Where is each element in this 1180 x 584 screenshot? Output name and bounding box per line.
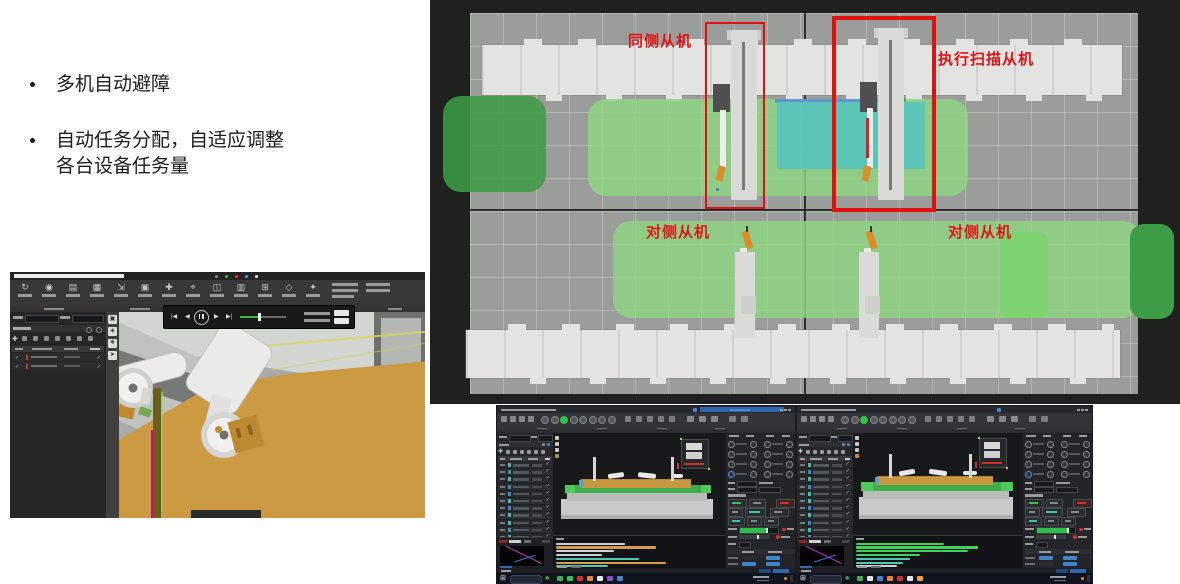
- param-input-2[interactable]: [1034, 487, 1054, 493]
- help-icon[interactable]: ✦: [302, 281, 324, 297]
- sim3d-ribbon-toolbar: ↻◉▤▦⇲▣✚⌖◫▥⊞◇✦: [10, 280, 425, 307]
- task-table-row[interactable]: ✓: [798, 527, 852, 534]
- taskbar-app-icon[interactable]: [577, 576, 583, 582]
- profile-dropdown[interactable]: [809, 435, 831, 442]
- console-log-line: [856, 554, 920, 556]
- aux-button-4[interactable]: [764, 517, 779, 526]
- titlebar-dot-icon[interactable]: [255, 275, 258, 278]
- toolbar-circle-icon[interactable]: [879, 416, 887, 424]
- slide-bullet-list: 多机自动避障 自动任务分配，自适应调整 各台设备任务量: [26, 72, 426, 210]
- export-icon[interactable]: ▦: [86, 281, 108, 297]
- toolbar-square-icon[interactable]: [819, 416, 825, 422]
- aux-button-3[interactable]: [747, 517, 762, 526]
- sim3d-app-window: ↻◉▤▦⇲▣✚⌖◫▥⊞◇✦ ✚ ✓ ✓: [10, 272, 425, 518]
- speed-spinbox-2[interactable]: [334, 318, 349, 324]
- small-input[interactable]: [1036, 542, 1048, 548]
- monitor-window-right: ✚ ✓✓✓✓✓✓✓✓✓✓✓✓✓✓✓: [797, 406, 1092, 584]
- work-zone-dark-green-right: [1130, 224, 1174, 319]
- toolbar-circle-icon[interactable]: [598, 416, 606, 424]
- toggle-control[interactable]: [764, 460, 794, 467]
- toggle-control[interactable]: [1061, 440, 1091, 447]
- ribbon-option-bar[interactable]: [366, 289, 390, 292]
- speed-label-2: [304, 319, 330, 322]
- aux-button-4[interactable]: [1061, 517, 1076, 526]
- monitor-toolbar: [497, 413, 795, 431]
- sim3d-title-field: [14, 274, 124, 278]
- toolbar-circle-icon[interactable]: [541, 416, 549, 424]
- step-back-icon[interactable]: ◀: [185, 313, 190, 321]
- toggle-control[interactable]: [1061, 470, 1091, 477]
- title-blue-strip: [700, 407, 784, 412]
- machine-post-1: [593, 457, 596, 481]
- aux-button-2[interactable]: [770, 508, 789, 517]
- bullet-text-1: 多机自动避障: [56, 74, 170, 95]
- panel-settings-icon[interactable]: [96, 327, 102, 333]
- minimize-icon[interactable]: [1077, 409, 1080, 411]
- console-log-line: [856, 546, 978, 548]
- taskbar-app-icon[interactable]: [877, 576, 883, 582]
- toggle-grid: [728, 440, 795, 480]
- search-box[interactable]: [510, 575, 542, 584]
- toolbar-square-icon[interactable]: [669, 416, 675, 422]
- mini-tool-icon[interactable]: [520, 450, 524, 454]
- conveyor-rail-bottom: [466, 330, 1120, 378]
- task-table-row[interactable]: ✓: [798, 505, 852, 512]
- toggle-control[interactable]: [764, 450, 794, 457]
- console-log-lines: [853, 541, 1022, 565]
- toolbar-circle-icon[interactable]: [608, 416, 616, 424]
- mini-tool-icon[interactable]: [541, 450, 545, 454]
- tray-orange-dot: [784, 577, 787, 580]
- table-header: [498, 456, 552, 461]
- toolbar-circle-icon[interactable]: [589, 416, 597, 424]
- console-panel: [853, 535, 1022, 569]
- toolbar-square-icon[interactable]: [1011, 416, 1018, 422]
- task-table-row[interactable]: ✓: [498, 527, 552, 534]
- toolbar-circle-icon[interactable]: [570, 416, 578, 424]
- task-table-row[interactable]: ✓: [498, 476, 552, 483]
- cut-icon[interactable]: ⌖: [182, 281, 204, 297]
- maximize-icon[interactable]: [1081, 409, 1084, 411]
- toolbar-circle-icon[interactable]: [870, 416, 878, 424]
- taskbar-app-icon[interactable]: [887, 576, 893, 582]
- toolbar-circle-icon[interactable]: [908, 416, 916, 424]
- bottom-overlay-bar: [191, 510, 261, 518]
- panel-refresh-icon[interactable]: [86, 327, 92, 333]
- sim3d-title-bar: [10, 272, 425, 280]
- windows-taskbar: ⊞ ♣: [797, 573, 1092, 584]
- titlebar-dot-icon[interactable]: [235, 275, 238, 278]
- toolbar-square-icon[interactable]: [925, 416, 931, 422]
- small-input[interactable]: [739, 542, 751, 548]
- viewport-tool-strip: ▣◈✥➤: [106, 312, 119, 518]
- viewport-tool-icon[interactable]: ◈: [108, 327, 117, 336]
- task-row[interactable]: ✓ ✓: [12, 362, 104, 370]
- add-task-icon[interactable]: ✚: [798, 449, 803, 455]
- mode-dropdown[interactable]: [538, 435, 553, 442]
- seam-magenta-edge: [151, 430, 153, 518]
- open-icon[interactable]: ↻: [14, 281, 36, 297]
- node-red-tick: [677, 463, 679, 469]
- timeline-slider-fill: [240, 316, 260, 318]
- add-item-icon[interactable]: ✚: [12, 335, 18, 343]
- skip-forward-icon[interactable]: ▶|: [226, 313, 232, 321]
- panel-header: [10, 325, 106, 332]
- monitor-viewport[interactable]: [853, 433, 1022, 535]
- toolbar-square-icon[interactable]: [1029, 416, 1036, 422]
- annotation-opposite-2: 对侧从机: [948, 221, 1012, 242]
- offset-track: [1036, 535, 1066, 539]
- start-button[interactable]: [728, 499, 747, 508]
- toolbar-square-icon[interactable]: [510, 416, 516, 422]
- mini-tool-icon[interactable]: [806, 450, 810, 454]
- toolbar-circle-icon[interactable]: [579, 416, 587, 424]
- scan-button[interactable]: [1025, 517, 1042, 526]
- minimize-icon[interactable]: [780, 409, 783, 411]
- mini-tool-icon[interactable]: [827, 450, 831, 454]
- console-log-line: [856, 558, 910, 560]
- toggle-control[interactable]: [728, 460, 758, 467]
- work-zone-bright-cell: [1000, 232, 1048, 318]
- task-row[interactable]: ✓ ✓: [12, 353, 104, 361]
- search-box[interactable]: [810, 575, 842, 584]
- mini-tool-icon[interactable]: [506, 450, 510, 454]
- sim3d-viewport[interactable]: [119, 312, 425, 518]
- robot3-tool-tick: [746, 226, 748, 232]
- panel-header: [497, 442, 553, 447]
- scan-progress-fill: [740, 528, 766, 533]
- toolbar-square-icon[interactable]: [1041, 416, 1048, 422]
- toolbar-square-icon[interactable]: [958, 416, 964, 422]
- console-log-line: [556, 543, 625, 545]
- result-table-header: [728, 549, 795, 554]
- task-table-row[interactable]: ✓: [798, 520, 852, 527]
- monitor-toolbar: [797, 413, 1092, 431]
- pause-task-button[interactable]: [1046, 499, 1063, 508]
- toolbar-square-icon[interactable]: [501, 416, 507, 422]
- pause-task-button[interactable]: [749, 499, 766, 508]
- import-icon[interactable]: ▤: [62, 281, 84, 297]
- toolbar-circle-icon[interactable]: [851, 416, 859, 424]
- titlebar-dot-icon[interactable]: [245, 275, 248, 278]
- grid-icon[interactable]: ▣: [134, 281, 156, 297]
- close-icon[interactable]: [788, 409, 791, 411]
- task-table-row[interactable]: ✓: [798, 469, 852, 476]
- highlight-box-scan-exec: [832, 16, 936, 212]
- sidebar-tool-icon[interactable]: [88, 336, 93, 341]
- toggle-control[interactable]: [728, 450, 758, 457]
- sidebar-tool-icon[interactable]: [44, 336, 49, 341]
- record-green-icon[interactable]: [560, 416, 568, 424]
- speed-label-1: [304, 312, 330, 315]
- taskbar-app-icon[interactable]: [907, 576, 913, 582]
- mini-tool-icon[interactable]: [834, 450, 838, 454]
- show-desktop-button[interactable]: [1087, 575, 1090, 582]
- toggle-control[interactable]: [1025, 440, 1055, 447]
- machine-base: [859, 497, 1013, 519]
- toolbar-square-icon[interactable]: [987, 416, 994, 422]
- taskbar-app-icon[interactable]: [587, 576, 593, 582]
- alert-dot-1: [1079, 528, 1083, 532]
- beam-blue-accent: [875, 477, 879, 484]
- machine-post-2: [671, 457, 674, 481]
- timeline-slider-track[interactable]: [240, 316, 286, 318]
- task-table: ✓✓✓✓✓✓✓✓✓✓✓✓✓✓✓: [497, 462, 553, 537]
- task-table-row[interactable]: ✓: [498, 462, 552, 469]
- console-log-line: [856, 562, 903, 564]
- task-table-row[interactable]: ✓: [498, 484, 552, 491]
- task-table-row[interactable]: ✓: [798, 462, 852, 469]
- console-panel: [553, 535, 725, 569]
- toolbar-group-label: [715, 428, 725, 430]
- machine-base: [561, 499, 713, 519]
- scan-icon[interactable]: ▥: [230, 281, 252, 297]
- toggle-control[interactable]: [764, 470, 794, 477]
- toggle-grid: [1025, 440, 1092, 480]
- console-log-line: [856, 550, 968, 552]
- toolbar-square-icon[interactable]: [636, 416, 642, 422]
- toolbar-square-icon[interactable]: [658, 416, 664, 422]
- param-input-2[interactable]: [737, 487, 757, 493]
- alert-dot-1: [782, 528, 786, 532]
- bullet-text-2a: 自动任务分配，自适应调整: [56, 130, 284, 151]
- scan-progress-track: [739, 527, 779, 534]
- task-table-row[interactable]: ✓: [498, 512, 552, 519]
- bullet-text-2b: 各台设备任务量: [56, 156, 189, 177]
- sync-icon[interactable]: ◉: [38, 281, 60, 297]
- scene-dropdown[interactable]: [25, 315, 59, 323]
- toolbar-square-icon[interactable]: [741, 416, 748, 422]
- mini-tool-icon[interactable]: [813, 450, 817, 454]
- ribbon-option-bar[interactable]: [332, 289, 358, 292]
- machine-orange-beam: [877, 476, 993, 485]
- aux-button-1[interactable]: [1025, 508, 1040, 517]
- stop-button[interactable]: [1073, 499, 1092, 508]
- dropdown-label: [60, 316, 70, 319]
- start-icon[interactable]: ⊞: [800, 574, 806, 582]
- toggle-control[interactable]: [1061, 460, 1091, 467]
- viewport-tool-icon[interactable]: ✥: [108, 339, 117, 348]
- timeline-slider-thumb[interactable]: [258, 313, 261, 321]
- param-input-3[interactable]: [759, 487, 781, 493]
- alert-dot-2: [776, 535, 780, 539]
- console-log-line: [856, 543, 944, 545]
- aux-button-2[interactable]: [1067, 508, 1086, 517]
- toolbar-square-icon[interactable]: [999, 416, 1006, 422]
- calibrate-button[interactable]: [1042, 508, 1063, 517]
- mini-tool-icon[interactable]: [841, 450, 845, 454]
- mini-tool-icon[interactable]: [513, 450, 517, 454]
- viewport-tool-icon[interactable]: ▣: [108, 315, 117, 324]
- monitor-left-panel: ✚ ✓✓✓✓✓✓✓✓✓✓✓✓✓✓✓: [497, 433, 553, 537]
- task-table-row[interactable]: ✓: [798, 476, 852, 483]
- task-table-row[interactable]: ✓: [498, 491, 552, 498]
- task-table-row[interactable]: ✓: [498, 469, 552, 476]
- simulation-topview-panel: 同侧从机 执行扫描从机 对侧从机 对侧从机: [430, 0, 1180, 404]
- task-table-row[interactable]: ✓: [798, 512, 852, 519]
- scan-button[interactable]: [728, 517, 745, 526]
- toolbar-group-label: [897, 428, 907, 430]
- add-task-icon[interactable]: ✚: [498, 449, 503, 455]
- titlebar-dot-icon[interactable]: [225, 275, 228, 278]
- node-graph-box[interactable]: [681, 439, 709, 469]
- stop-button[interactable]: [776, 499, 795, 508]
- path-preview-panel: [497, 537, 553, 569]
- toolbar-square-icon[interactable]: [687, 416, 694, 422]
- speed-spinbox-1[interactable]: [334, 310, 349, 316]
- toolbar-group-label: [597, 428, 607, 430]
- robot3-box: [741, 296, 756, 314]
- record-green-icon[interactable]: [860, 416, 868, 424]
- taskbar-app-icon[interactable]: [857, 576, 863, 582]
- robot3-carriage: [735, 252, 755, 338]
- profile-dropdown[interactable]: [509, 435, 531, 442]
- monitor-title-bar: [497, 406, 795, 413]
- close-icon[interactable]: [1085, 409, 1088, 411]
- step-forward-icon[interactable]: ▶: [214, 313, 219, 321]
- taskbar-app-icon[interactable]: [567, 576, 573, 582]
- path-preview-panel: [797, 537, 853, 569]
- taskbar-app-icon[interactable]: [597, 576, 603, 582]
- layers-icon[interactable]: ✚: [158, 281, 180, 297]
- toolbar-circle-icon[interactable]: [889, 416, 897, 424]
- task-table-row[interactable]: ✓: [498, 520, 552, 527]
- sim3d-left-sidebar: ✚ ✓ ✓ ✓ ✓: [10, 312, 106, 518]
- monitor-viewport[interactable]: [553, 433, 725, 535]
- sidebar-icon-row: [22, 336, 102, 342]
- robot-blob-1: [608, 472, 625, 479]
- calibrate-button[interactable]: [745, 508, 766, 517]
- mode-dropdown[interactable]: [72, 315, 104, 323]
- mini-tool-icon[interactable]: [527, 450, 531, 454]
- taskbar-app-icon[interactable]: [897, 576, 903, 582]
- toolbar-square-icon[interactable]: [729, 416, 736, 422]
- machine-orange-beam: [581, 479, 691, 488]
- show-desktop-button[interactable]: [790, 575, 793, 582]
- toolbar-circle-icon[interactable]: [841, 416, 849, 424]
- toggle-control[interactable]: [1061, 450, 1091, 457]
- param-input-3[interactable]: [1056, 487, 1078, 493]
- task-table-row[interactable]: ✓: [798, 491, 852, 498]
- toolbar-square-icon[interactable]: [810, 416, 816, 422]
- sidebar-tool-icon[interactable]: [66, 336, 71, 341]
- viewport-tool-icon[interactable]: ➤: [108, 351, 117, 360]
- toggle-control[interactable]: [1025, 460, 1055, 467]
- toolbar-square-icon[interactable]: [699, 416, 706, 422]
- maximize-icon[interactable]: [784, 409, 787, 411]
- taskbar-app-icon[interactable]: [867, 576, 873, 582]
- ribbon-option-bar[interactable]: [332, 283, 358, 286]
- titlebar-dot-icon[interactable]: [215, 275, 218, 278]
- sidebar-tool-icon[interactable]: [22, 336, 27, 341]
- grid-divider-horizontal: [470, 209, 1138, 211]
- task-table-row[interactable]: ✓: [498, 505, 552, 512]
- pause-icon[interactable]: [194, 310, 209, 325]
- toggle-control[interactable]: [728, 440, 758, 447]
- toolbar-group-label: [837, 428, 847, 430]
- mini-tool-icon[interactable]: [820, 450, 824, 454]
- title-blue-dot: [693, 408, 697, 412]
- monitor-left-panel: ✚ ✓✓✓✓✓✓✓✓✓✓✓✓✓✓✓: [797, 433, 853, 537]
- measure-icon[interactable]: ⇲: [110, 281, 132, 297]
- toolbar-square-icon[interactable]: [625, 416, 631, 422]
- work-zone-dark-green-left: [443, 96, 546, 192]
- toggle-control[interactable]: [1025, 470, 1055, 477]
- seam-green-edge: [161, 392, 163, 512]
- ribbon-option-bar[interactable]: [332, 295, 354, 298]
- settings-icon[interactable]: ⊞: [254, 281, 276, 297]
- panel-header: [797, 442, 853, 447]
- start-button[interactable]: [1025, 499, 1044, 508]
- toolbar-circle-icon[interactable]: [551, 416, 559, 424]
- toolbar-square-icon[interactable]: [528, 416, 534, 422]
- taskbar-app-icon[interactable]: [617, 576, 623, 582]
- toolbar-square-icon[interactable]: [969, 416, 975, 422]
- node-graph-box[interactable]: [979, 438, 1007, 468]
- toggle-control[interactable]: [1025, 450, 1055, 457]
- toolbar-square-icon[interactable]: [936, 416, 942, 422]
- annotation-same-side: 同侧从机: [628, 30, 692, 51]
- toolbar-group-label: [957, 428, 967, 430]
- task-table-header: [12, 346, 104, 352]
- path-icon[interactable]: ◫: [206, 281, 228, 297]
- monitor-control-panel: [725, 433, 795, 568]
- toolbar-square-icon[interactable]: [711, 416, 718, 422]
- toggle-control[interactable]: [728, 470, 758, 477]
- bullet-item-2: 自动任务分配，自适应调整 各台设备任务量: [26, 128, 426, 180]
- robot4-box: [865, 296, 880, 314]
- task-table-row[interactable]: ✓: [798, 484, 852, 491]
- monitor-title-bar: [797, 406, 1092, 413]
- skip-back-icon[interactable]: |◀: [171, 313, 177, 321]
- toolbar-square-icon[interactable]: [647, 416, 653, 422]
- task-table-row[interactable]: ✓: [498, 498, 552, 505]
- taskbar-app-icon[interactable]: [607, 576, 613, 582]
- toggle-control[interactable]: [764, 440, 794, 447]
- view-icon[interactable]: ◇: [278, 281, 300, 297]
- sidebar-tool-icon[interactable]: [33, 336, 38, 341]
- robot4-carriage: [859, 252, 879, 338]
- dropdown-label: [13, 316, 23, 319]
- mode-dropdown[interactable]: [838, 435, 853, 442]
- sidebar-tool-icon[interactable]: [77, 336, 82, 341]
- aux-button-3[interactable]: [1044, 517, 1059, 526]
- toolbar-square-icon[interactable]: [801, 416, 807, 422]
- toolbar-circle-icon[interactable]: [898, 416, 906, 424]
- taskbar-app-icon[interactable]: [557, 576, 563, 582]
- task-table-row[interactable]: ✓: [798, 498, 852, 505]
- scan-progress-fill: [1037, 528, 1067, 533]
- taskbar-app-icon[interactable]: [917, 576, 923, 582]
- start-icon[interactable]: ⊞: [500, 574, 506, 582]
- ribbon-option-bar[interactable]: [366, 283, 390, 286]
- toolbar-square-icon[interactable]: [947, 416, 953, 422]
- bullet-dot: [30, 138, 35, 143]
- toolbar-group-label: [657, 428, 667, 430]
- toolbar-square-icon[interactable]: [519, 416, 525, 422]
- mini-tool-icon[interactable]: [534, 450, 538, 454]
- scanner-lens-orange: [215, 426, 222, 433]
- toolbar-square-icon[interactable]: [828, 416, 834, 422]
- sidebar-tool-icon[interactable]: [55, 336, 60, 341]
- table-header: [798, 456, 852, 461]
- annotation-opposite-1: 对侧从机: [646, 221, 710, 242]
- machine-post-2: [969, 454, 972, 478]
- task-table: ✓✓✓✓✓✓✓✓✓✓✓✓✓✓✓: [797, 462, 853, 537]
- toolbar-group-label: [1015, 428, 1025, 430]
- beam-blue-accent: [579, 480, 583, 487]
- aux-button-1[interactable]: [728, 508, 743, 517]
